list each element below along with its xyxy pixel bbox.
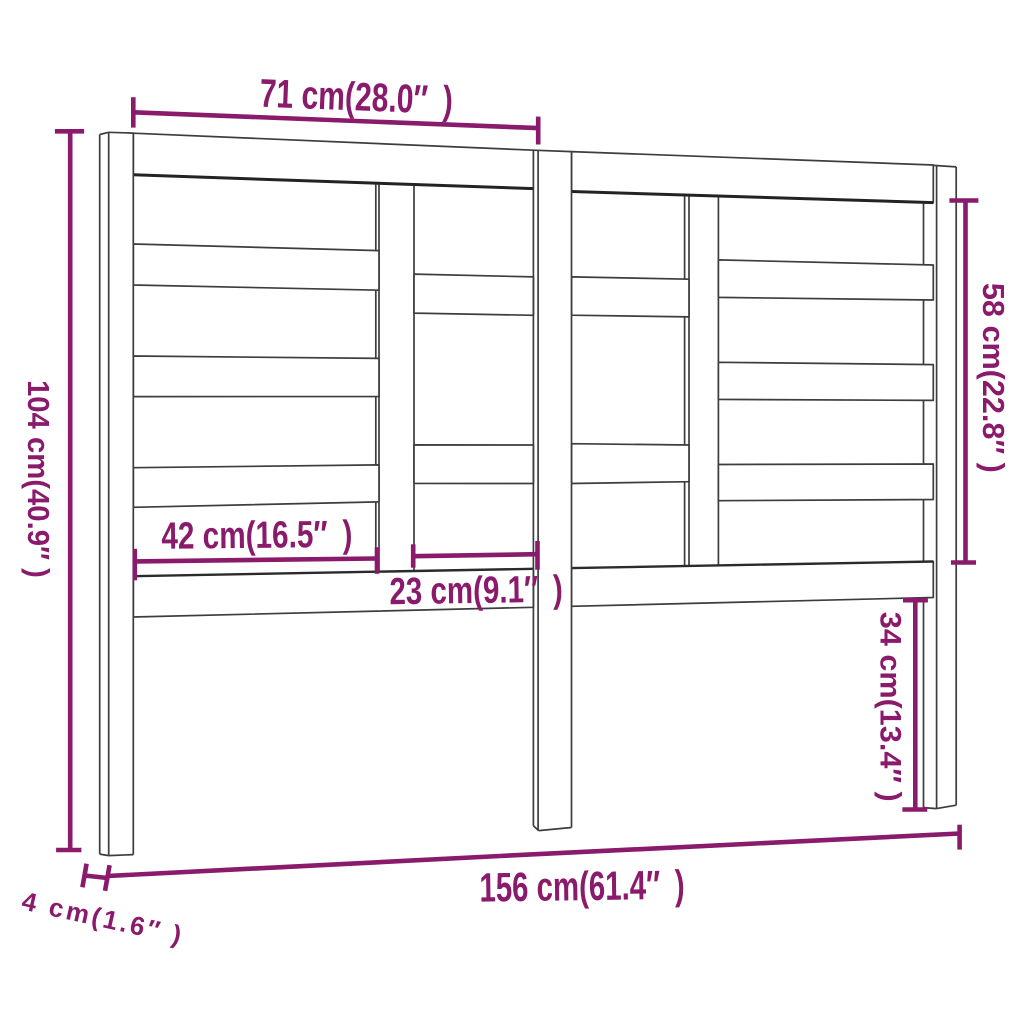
svg-text:23 cm(9.1″ ): 23 cm(9.1″ ) xyxy=(389,568,563,613)
svg-text:156 cm(61.4″ ): 156 cm(61.4″ ) xyxy=(479,862,685,911)
svg-text:34 cm(13.4″ ): 34 cm(13.4″ ) xyxy=(874,612,907,802)
svg-text:42 cm(16.5″ ): 42 cm(16.5″ ) xyxy=(161,513,352,557)
svg-text:104 cm(40.9″ ): 104 cm(40.9″ ) xyxy=(21,380,55,578)
svg-text:71 cm(28.0″ ): 71 cm(28.0″ ) xyxy=(259,72,454,123)
svg-text:58 cm(22.8″ ): 58 cm(22.8″ ) xyxy=(976,283,1011,473)
